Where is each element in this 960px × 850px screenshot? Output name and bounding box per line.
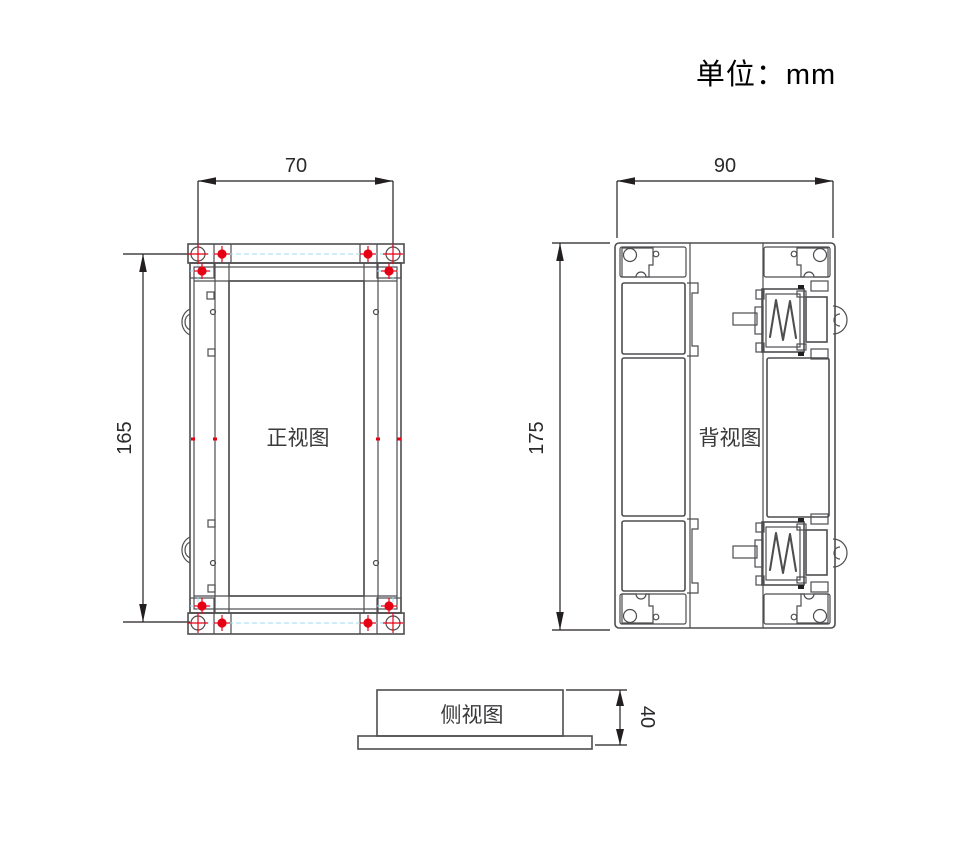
screw-icon bbox=[360, 246, 376, 262]
corner-block bbox=[620, 594, 686, 624]
side-view: 40 侧视图 bbox=[358, 690, 658, 749]
rail-bracket-icon bbox=[687, 283, 698, 356]
back-right-compartment bbox=[767, 358, 829, 517]
back-width-value: 90 bbox=[714, 155, 736, 177]
corner-block bbox=[620, 247, 686, 277]
arrowhead-right-icon bbox=[375, 177, 393, 185]
rail-bracket-icon bbox=[687, 519, 698, 593]
front-width-value: 70 bbox=[285, 155, 307, 177]
side-height-value: 40 bbox=[636, 706, 658, 728]
arrowhead-up-icon bbox=[616, 690, 624, 706]
side-view-label: 侧视图 bbox=[441, 704, 504, 727]
arrowhead-down-icon bbox=[139, 604, 147, 622]
back-left-compartments bbox=[622, 283, 698, 593]
screw-icon bbox=[381, 263, 397, 279]
front-view: 70 165 bbox=[114, 155, 404, 634]
screw-icon bbox=[360, 615, 376, 631]
mounting-hole-icon bbox=[383, 244, 403, 264]
front-height-value: 165 bbox=[114, 421, 136, 454]
arrowhead-left-icon bbox=[617, 177, 635, 185]
back-view: 90 175 bbox=[526, 155, 847, 630]
front-height-dimension: 165 bbox=[114, 254, 190, 622]
back-view-label: 背视图 bbox=[699, 427, 762, 450]
front-width-dimension: 70 bbox=[198, 155, 393, 247]
mounting-hole-icon bbox=[188, 244, 208, 264]
technical-drawing-page: 单位：mm 70 165 bbox=[0, 0, 960, 850]
arrowhead-right-icon bbox=[815, 177, 833, 185]
screw-icon bbox=[194, 263, 210, 279]
arrowhead-up-icon bbox=[556, 243, 564, 261]
drawing-canvas: 单位：mm 70 165 bbox=[0, 0, 960, 850]
arrowhead-down-icon bbox=[616, 729, 624, 745]
screw-icon bbox=[214, 246, 230, 262]
din-rail-clip bbox=[733, 514, 847, 592]
front-view-label: 正视图 bbox=[267, 427, 330, 450]
mounting-hole-icon bbox=[383, 613, 403, 633]
arrowhead-down-icon bbox=[556, 612, 564, 630]
front-latch-icons bbox=[182, 309, 190, 563]
screw-icon bbox=[381, 598, 397, 614]
corner-block bbox=[764, 594, 830, 624]
mounting-hole-icon bbox=[188, 613, 208, 633]
back-height-dimension: 175 bbox=[526, 243, 610, 630]
din-rail-clip bbox=[733, 281, 847, 359]
arrowhead-left-icon bbox=[198, 177, 216, 185]
back-height-value: 175 bbox=[526, 421, 548, 454]
screw-icon bbox=[214, 615, 230, 631]
side-base-flange bbox=[358, 736, 592, 749]
corner-block bbox=[764, 247, 830, 277]
units-title: 单位：mm bbox=[696, 58, 836, 91]
arrowhead-up-icon bbox=[139, 254, 147, 272]
back-width-dimension: 90 bbox=[617, 155, 833, 238]
screw-icon bbox=[194, 598, 210, 614]
